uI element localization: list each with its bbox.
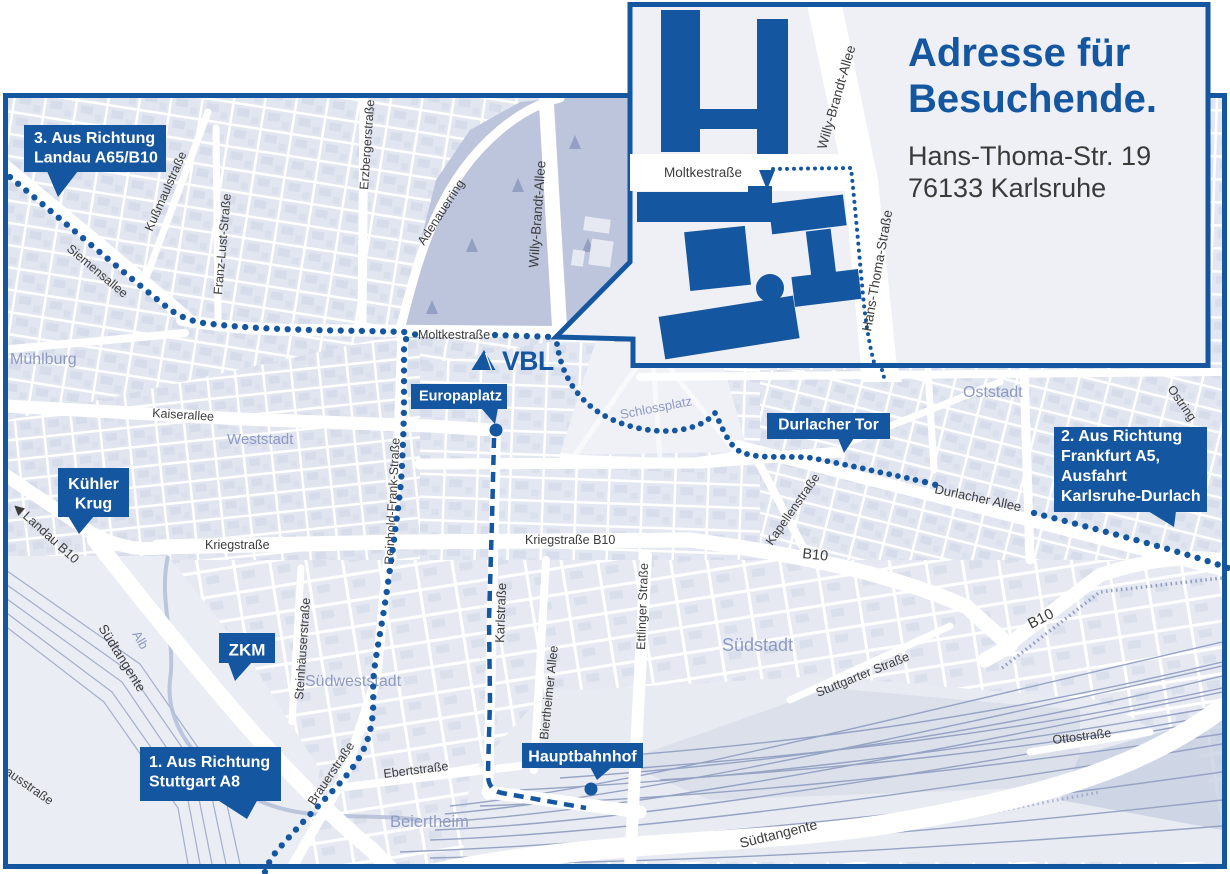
- svg-text:Südstadt: Südstadt: [722, 635, 793, 655]
- svg-text:Hauptbahnhof: Hauptbahnhof: [528, 749, 637, 766]
- svg-text:Ausfahrt: Ausfahrt: [1061, 468, 1127, 485]
- svg-text:Moltkestraße: Moltkestraße: [418, 328, 490, 342]
- svg-text:Frankfurt A5,: Frankfurt A5,: [1061, 448, 1160, 465]
- svg-text:Moltkestraße: Moltkestraße: [664, 165, 742, 180]
- svg-text:1. Aus Richtung: 1. Aus Richtung: [149, 754, 270, 771]
- svg-text:Hans-Thoma-Str. 19: Hans-Thoma-Str. 19: [908, 141, 1151, 171]
- svg-text:B10: B10: [802, 546, 829, 565]
- svg-text:Kriegstraße B10: Kriegstraße B10: [525, 533, 615, 547]
- svg-text:76133 Karlsruhe: 76133 Karlsruhe: [908, 173, 1106, 203]
- svg-text:Besuchende.: Besuchende.: [908, 77, 1157, 121]
- svg-text:ZKM: ZKM: [229, 641, 266, 660]
- svg-text:Landau A65/B10: Landau A65/B10: [34, 150, 158, 167]
- svg-text:Karlstraße: Karlstraße: [492, 583, 509, 643]
- svg-text:VBL: VBL: [502, 346, 554, 376]
- svg-text:Südweststadt: Südweststadt: [305, 673, 402, 690]
- svg-text:3. Aus Richtung: 3. Aus Richtung: [34, 130, 155, 147]
- svg-text:Stuttgart A8: Stuttgart A8: [149, 774, 240, 791]
- svg-text:Kühler: Kühler: [68, 476, 119, 493]
- svg-text:Weststadt: Weststadt: [227, 431, 294, 448]
- svg-text:Karlsruhe-Durlach: Karlsruhe-Durlach: [1061, 488, 1201, 505]
- svg-text:Beiertheim: Beiertheim: [390, 813, 469, 831]
- svg-text:Adresse für: Adresse für: [908, 31, 1130, 75]
- svg-text:Krug: Krug: [75, 496, 112, 513]
- svg-text:Kriegstraße: Kriegstraße: [205, 538, 270, 552]
- svg-text:2. Aus Richtung: 2. Aus Richtung: [1061, 428, 1182, 445]
- svg-text:Europaplatz: Europaplatz: [419, 389, 502, 405]
- svg-text:Mühlburg: Mühlburg: [10, 351, 77, 368]
- svg-text:Oststadt: Oststadt: [963, 384, 1023, 401]
- svg-text:Durlacher Tor: Durlacher Tor: [778, 417, 879, 434]
